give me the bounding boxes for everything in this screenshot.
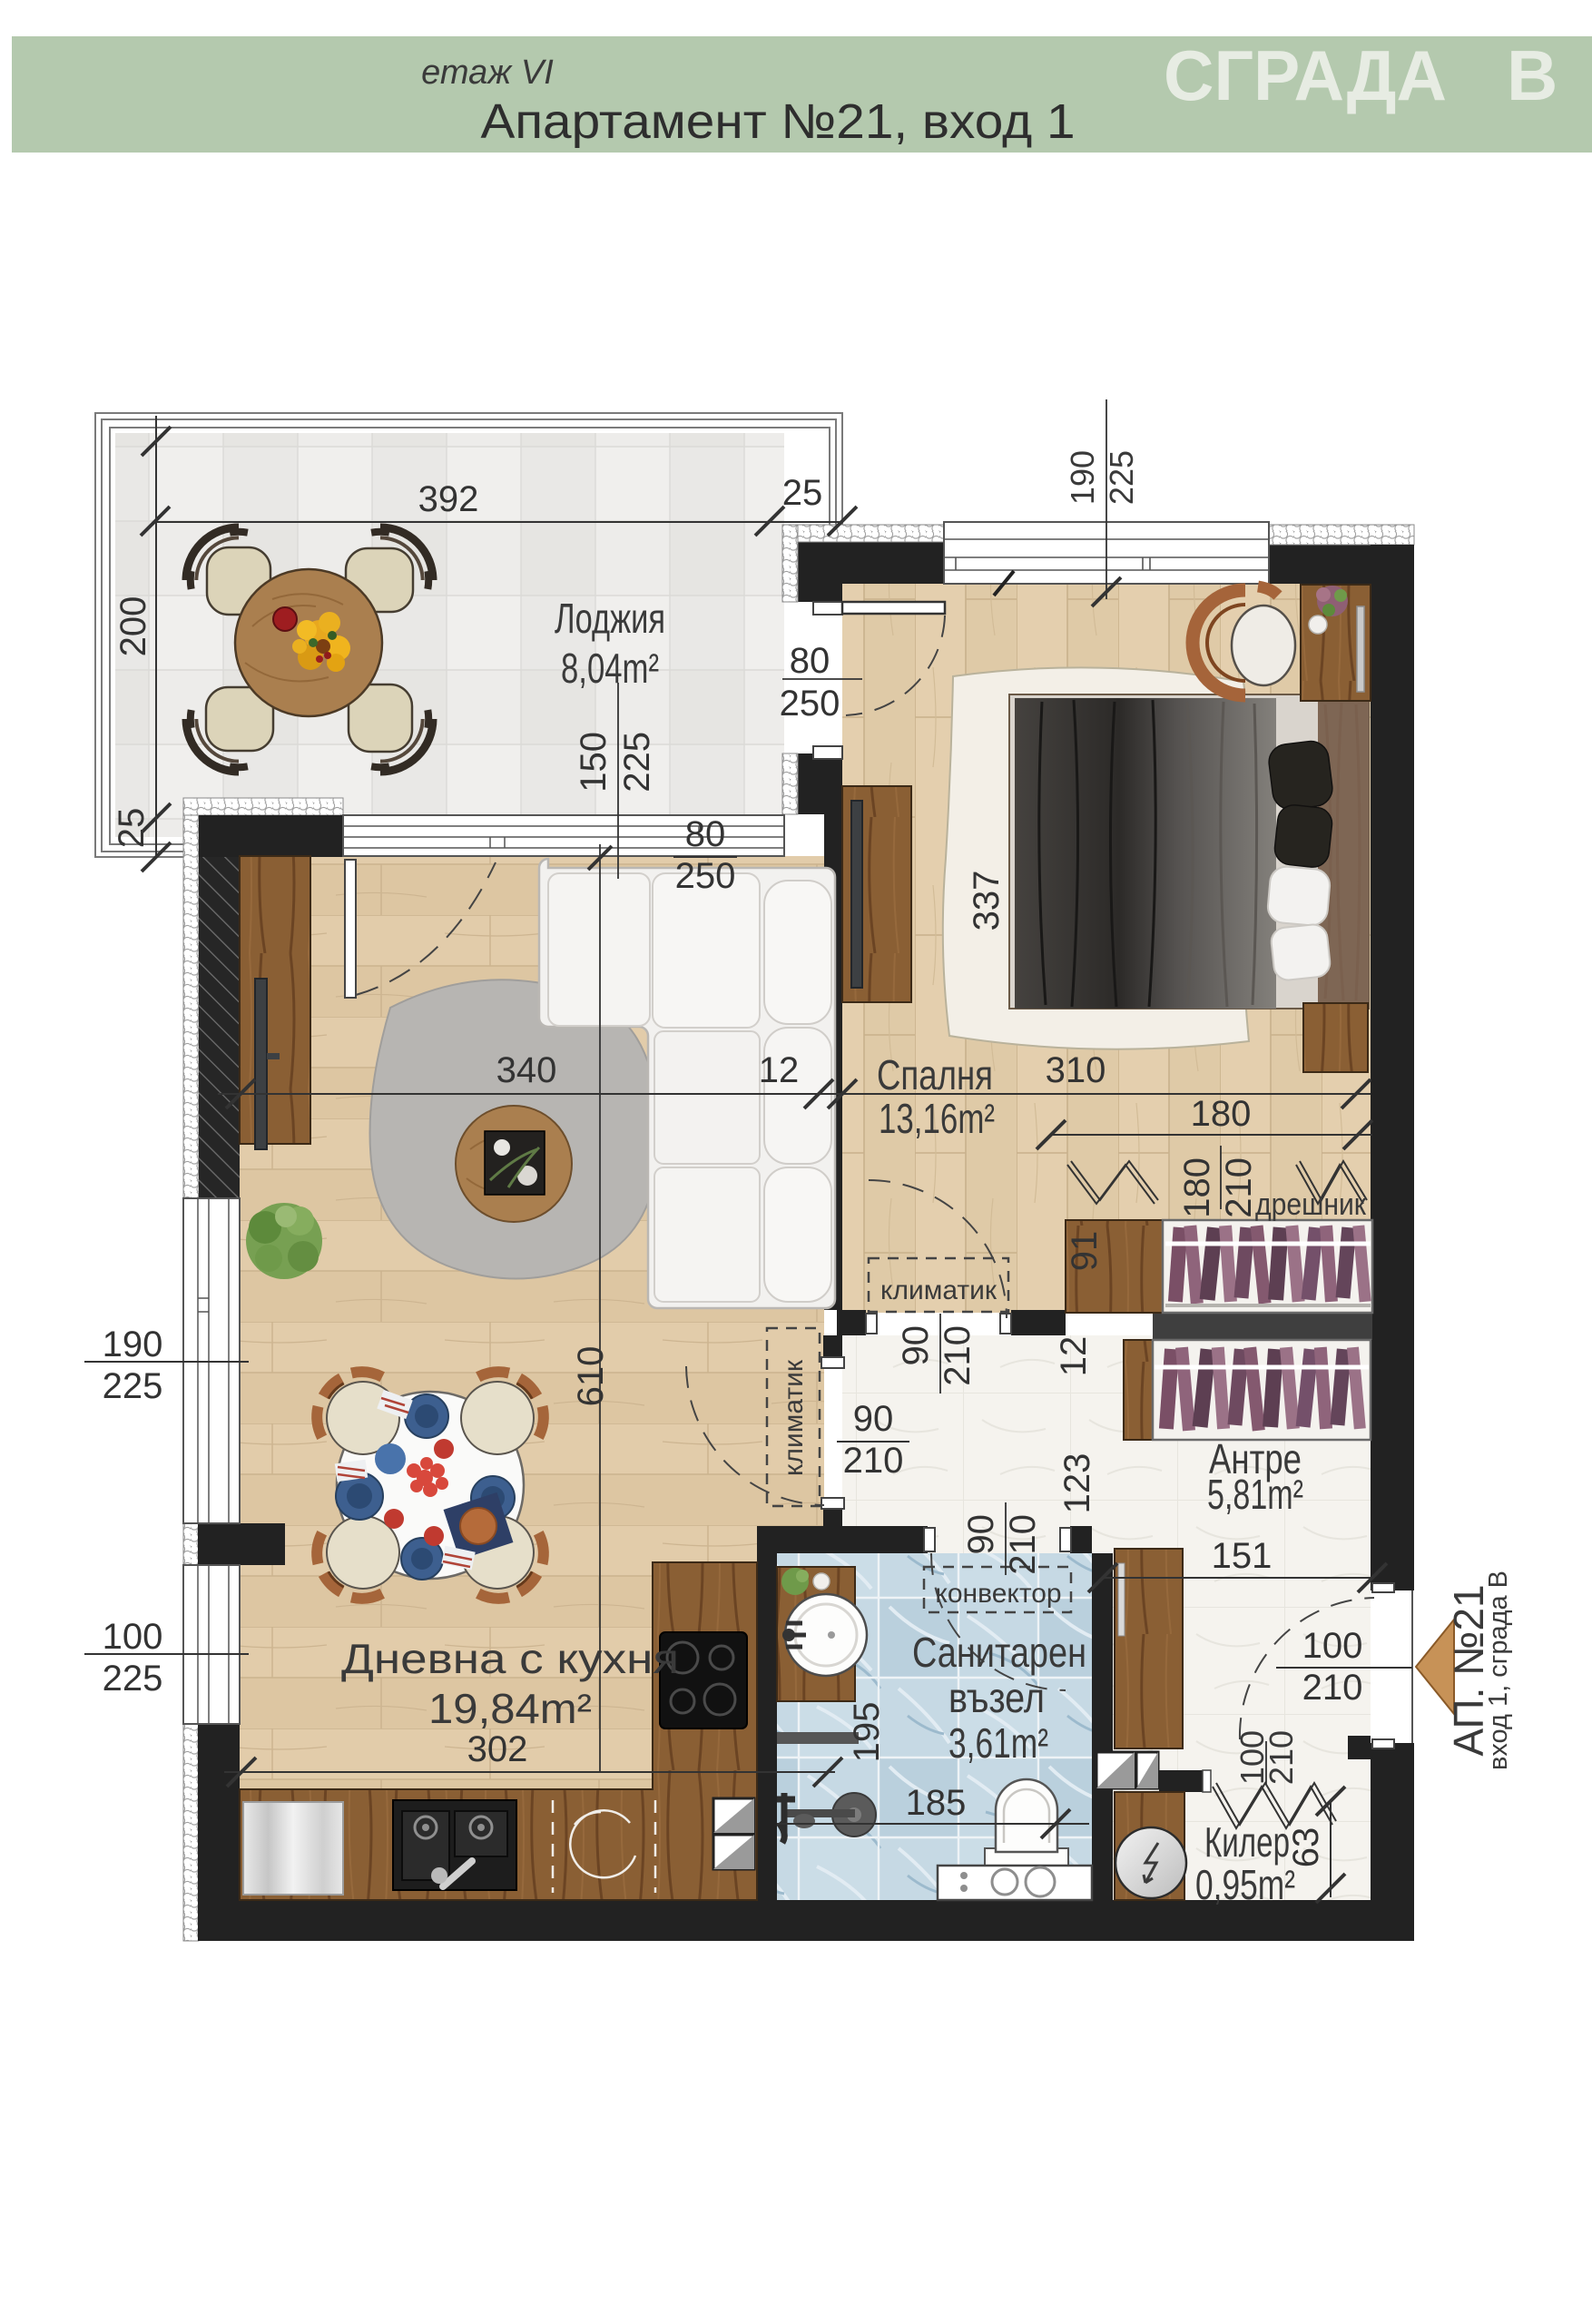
svg-text:100: 100 [1302, 1626, 1363, 1666]
svg-text:302: 302 [467, 1729, 528, 1769]
svg-text:25: 25 [112, 808, 152, 849]
svg-text:190: 190 [103, 1324, 163, 1364]
svg-text:19,84m²: 19,84m² [428, 1685, 592, 1732]
svg-text:250: 250 [675, 856, 736, 896]
svg-text:100: 100 [103, 1617, 163, 1657]
svg-text:12: 12 [759, 1050, 800, 1090]
svg-text:180: 180 [1177, 1157, 1217, 1218]
svg-text:етаж VI: етаж VI [421, 54, 554, 92]
svg-text:151: 151 [1212, 1536, 1273, 1576]
svg-text:225: 225 [1103, 450, 1140, 505]
svg-text:210: 210 [1219, 1157, 1259, 1218]
svg-text:Килер: Килер [1204, 1818, 1290, 1866]
svg-text:200: 200 [113, 596, 153, 657]
svg-text:възел: възел [948, 1674, 1045, 1721]
svg-text:337: 337 [967, 871, 1007, 931]
svg-text:225: 225 [103, 1366, 163, 1406]
svg-text:вход 1, сграда В: вход 1, сграда В [1484, 1571, 1513, 1770]
svg-text:Санитарен: Санитарен [912, 1629, 1086, 1676]
svg-text:210: 210 [1003, 1514, 1043, 1575]
svg-text:210: 210 [1302, 1668, 1363, 1708]
svg-text:90: 90 [853, 1399, 894, 1439]
svg-text:дрешник: дрешник [1255, 1187, 1367, 1222]
svg-text:63: 63 [1286, 1827, 1326, 1868]
svg-text:91: 91 [1065, 1231, 1105, 1272]
svg-text:В: В [1507, 35, 1558, 115]
svg-text:12: 12 [1054, 1336, 1094, 1377]
svg-text:123: 123 [1057, 1453, 1097, 1514]
svg-text:392: 392 [418, 479, 479, 519]
svg-text:210: 210 [938, 1325, 978, 1386]
svg-text:610: 610 [571, 1346, 611, 1407]
svg-text:310: 310 [1046, 1050, 1106, 1090]
svg-text:Апартамент №21, вход 1: Апартамент №21, вход 1 [481, 94, 1076, 149]
svg-text:190: 190 [1064, 450, 1101, 505]
svg-text:195: 195 [847, 1702, 887, 1763]
svg-text:климатик: климатик [880, 1275, 997, 1305]
svg-text:25: 25 [782, 473, 823, 513]
svg-text:340: 340 [496, 1050, 557, 1090]
svg-text:0,95m²: 0,95m² [1195, 1861, 1295, 1908]
svg-text:СГРАДА: СГРАДА [1164, 35, 1447, 115]
svg-text:80: 80 [685, 814, 726, 854]
svg-text:180: 180 [1191, 1094, 1252, 1134]
svg-text:3,61m²: 3,61m² [948, 1719, 1048, 1767]
svg-text:80: 80 [790, 641, 830, 681]
svg-text:185: 185 [906, 1783, 967, 1823]
svg-text:225: 225 [103, 1659, 163, 1699]
svg-text:5,81m²: 5,81m² [1207, 1471, 1303, 1518]
svg-text:210: 210 [1263, 1730, 1300, 1785]
svg-text:конвектор: конвектор [935, 1579, 1061, 1609]
svg-text:210: 210 [843, 1441, 904, 1481]
svg-text:Лоджия: Лоджия [555, 595, 665, 642]
svg-text:Спалня: Спалня [877, 1051, 993, 1098]
svg-text:климатик: климатик [779, 1359, 809, 1476]
svg-text:8,04m²: 8,04m² [561, 645, 659, 692]
svg-text:150: 150 [574, 732, 614, 793]
svg-text:90: 90 [896, 1325, 936, 1366]
svg-text:250: 250 [780, 684, 840, 724]
svg-text:225: 225 [617, 732, 657, 793]
svg-text:13,16m²: 13,16m² [879, 1095, 995, 1142]
svg-text:Дневна с кухня: Дневна с кухня [341, 1635, 679, 1682]
svg-text:90: 90 [961, 1514, 1001, 1555]
